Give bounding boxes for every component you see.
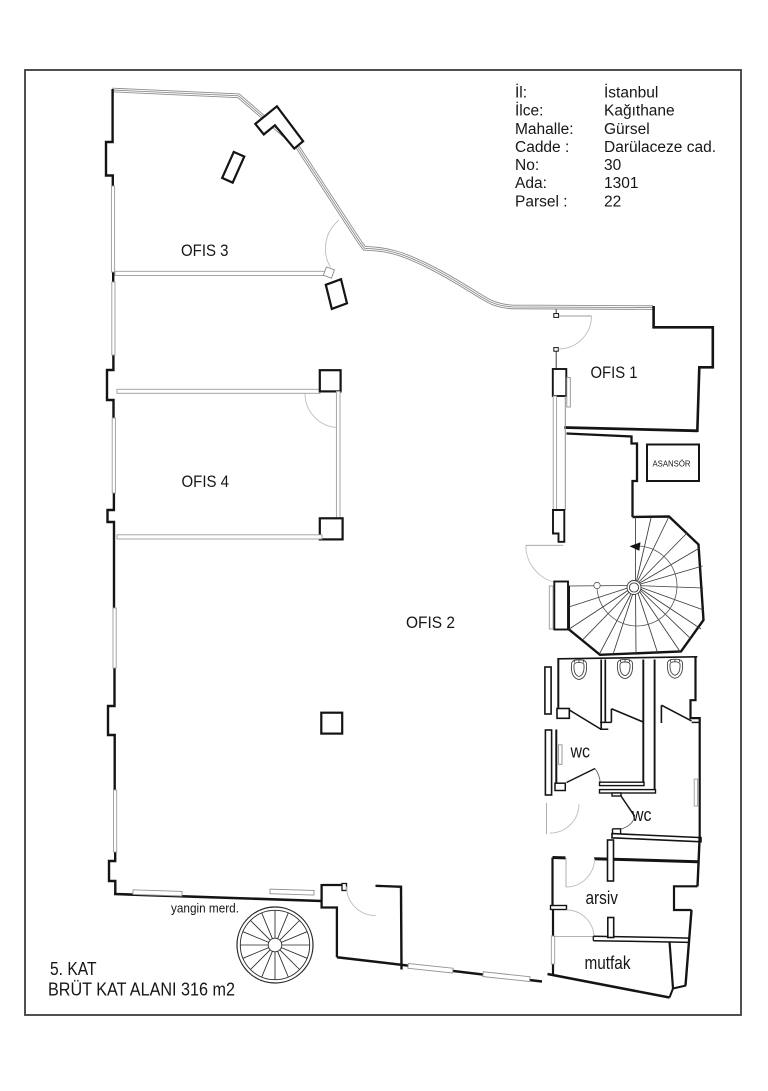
svg-text:Cadde :: Cadde : [515, 139, 569, 156]
svg-text:No:: No: [515, 157, 539, 174]
svg-text:Mahalle:: Mahalle: [515, 121, 574, 138]
svg-text:OFIS 4: OFIS 4 [182, 472, 230, 491]
svg-text:OFIS 3: OFIS 3 [181, 241, 229, 260]
svg-text:wc: wc [631, 805, 651, 825]
svg-text:wc: wc [570, 742, 590, 762]
svg-text:İstanbul: İstanbul [604, 84, 658, 102]
svg-text:22: 22 [604, 193, 621, 210]
svg-text:BRÜT KAT ALANI 316 m2: BRÜT KAT ALANI 316 m2 [48, 980, 235, 1000]
svg-text:ASANSÖR: ASANSÖR [653, 460, 691, 469]
svg-text:yangin merd.: yangin merd. [171, 902, 239, 916]
svg-text:İlce:: İlce: [515, 102, 543, 120]
svg-text:OFIS 1: OFIS 1 [591, 363, 638, 382]
svg-text:5. KAT: 5. KAT [50, 959, 97, 979]
svg-text:Ada:: Ada: [515, 175, 547, 192]
svg-text:30: 30 [604, 157, 622, 174]
svg-text:Parsel :: Parsel : [515, 193, 568, 210]
svg-text:arsiv: arsiv [586, 888, 619, 908]
svg-text:Gürsel: Gürsel [604, 121, 650, 138]
svg-text:1301: 1301 [604, 175, 638, 192]
svg-text:İl:: İl: [515, 84, 527, 102]
svg-text:Darülaceze cad.: Darülaceze cad. [604, 139, 716, 156]
svg-text:Kağıthane: Kağıthane [604, 103, 675, 120]
svg-text:mutfak: mutfak [585, 953, 632, 973]
svg-text:OFIS 2: OFIS 2 [406, 613, 455, 632]
